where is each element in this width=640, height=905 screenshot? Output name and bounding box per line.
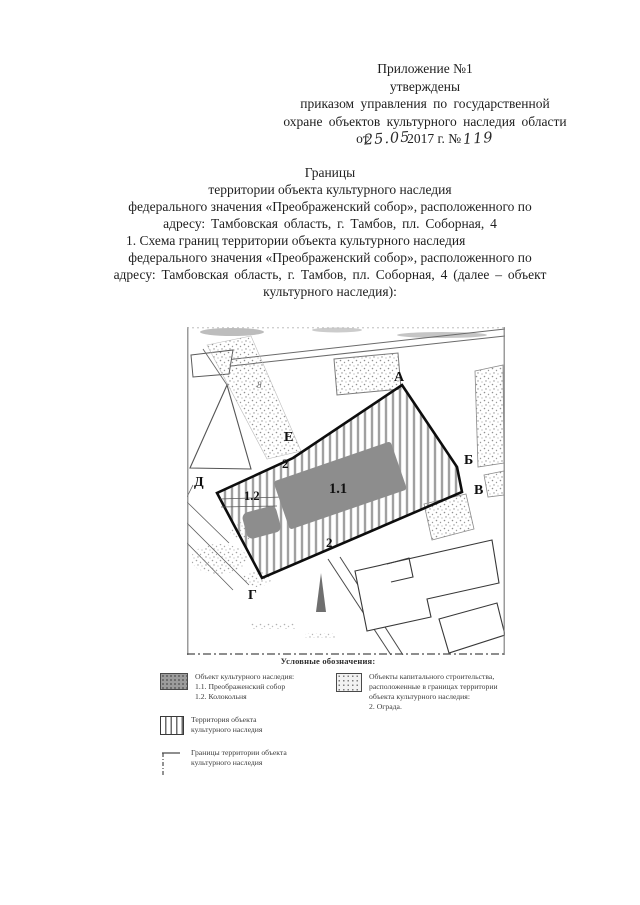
title-line-5: 1. Схема границ территории объекта культ…	[66, 232, 594, 249]
vertex-label-b: Б	[464, 453, 473, 468]
territory-text: Территория объекта культурного наследия	[184, 715, 332, 735]
title-line-1: Границы	[66, 164, 594, 181]
belltower-label: 1.2	[244, 489, 260, 503]
territory-swatch	[160, 716, 184, 735]
title-line-7: адресу: Тамбовская область, г. Тамбов, п…	[66, 266, 594, 283]
legend-item-boundary: Границы территории объекта культурного н…	[160, 748, 332, 779]
order-date-line: от25.052017 г. №119	[252, 130, 598, 149]
boundary-text: Границы территории объекта культурного н…	[184, 748, 332, 768]
appendix-line: Приложение №1	[252, 60, 598, 78]
vertex-label-d: Д	[194, 475, 204, 490]
legend-heading: Условные обозначения:	[152, 656, 504, 666]
title-line-3: федерального значения «Преображенский со…	[66, 198, 594, 215]
cathedral-label: 1.1	[329, 481, 347, 497]
vertex-label-g: Г	[248, 588, 257, 603]
legend-boundary-line2: культурного наследия	[191, 758, 332, 768]
legend-item-object: Объект культурного наследия: 1.1. Преобр…	[160, 672, 332, 702]
capital-construction-text: Объекты капитального строительства, расп…	[362, 672, 504, 712]
heritage-object-swatch	[160, 673, 188, 690]
legend-item-capital: Объекты капитального строительства, расп…	[336, 672, 504, 712]
title-line-4: адресу: Тамбовская область, г. Тамбов, п…	[66, 215, 594, 232]
legend-capital-line3: объекта культурного наследия:	[369, 692, 504, 702]
legend-item-territory: Территория объекта культурного наследия	[160, 715, 332, 735]
legend-territory-line2: культурного наследия	[191, 725, 332, 735]
legend-left-column: Объект культурного наследия: 1.1. Преобр…	[160, 672, 332, 792]
legend-object-line2: 1.1. Преображенский собор	[195, 682, 332, 692]
title-line-8: культурного наследия):	[66, 283, 594, 300]
handwritten-date: 25.05	[363, 129, 411, 150]
legend-capital-line4: 2. Ограда.	[369, 702, 504, 712]
vertex-label-a: А	[394, 370, 405, 385]
order-line-2: охране объектов культурного наследия обл…	[252, 113, 598, 131]
legend-object-line1: Объект культурного наследия:	[195, 672, 332, 682]
legend-object-line3: 1.2. Колокольня	[195, 692, 332, 702]
legend-boundary-line1: Границы территории объекта	[191, 748, 332, 758]
legend-territory-line1: Территория объекта	[191, 715, 332, 725]
legend-capital-line2: расположенные в границах территории	[369, 682, 504, 692]
legend-right-column: Объекты капитального строительства, расп…	[336, 672, 504, 725]
number-sign: №	[448, 131, 461, 146]
house-number-label: 8	[257, 380, 262, 390]
building-stippled-top	[334, 353, 401, 395]
fence-label-bottom: 2	[326, 535, 333, 550]
fence-label-top: 2	[282, 456, 289, 471]
order-line-1: приказом управления по государственной	[252, 95, 598, 113]
approved-line: утверждены	[252, 78, 598, 96]
title-line-6: федерального значения «Преображенский со…	[66, 249, 594, 266]
vertex-label-e: Е	[284, 430, 293, 445]
legend-capital-line1: Объекты капитального строительства,	[369, 672, 504, 682]
boundary-line-symbol	[160, 748, 184, 779]
boundary-scheme-map: А Б В Г Д Е 1.1 1.2 2 2 8	[187, 327, 505, 655]
document-title: Границы территории объекта культурного н…	[66, 164, 594, 300]
heritage-object-text: Объект культурного наследия: 1.1. Преобр…	[188, 672, 332, 702]
title-line-2: территории объекта культурного наследия	[66, 181, 594, 198]
vertex-label-v: В	[474, 483, 483, 498]
handwritten-number: 119	[463, 130, 495, 150]
legend: Условные обозначения: Объект культурного…	[152, 656, 504, 776]
approval-header: Приложение №1 утверждены приказом управл…	[252, 60, 598, 149]
date-year: 2017 г.	[407, 131, 445, 146]
scanned-document-page: Приложение №1 утверждены приказом управл…	[0, 0, 640, 905]
capital-construction-swatch	[336, 673, 362, 692]
